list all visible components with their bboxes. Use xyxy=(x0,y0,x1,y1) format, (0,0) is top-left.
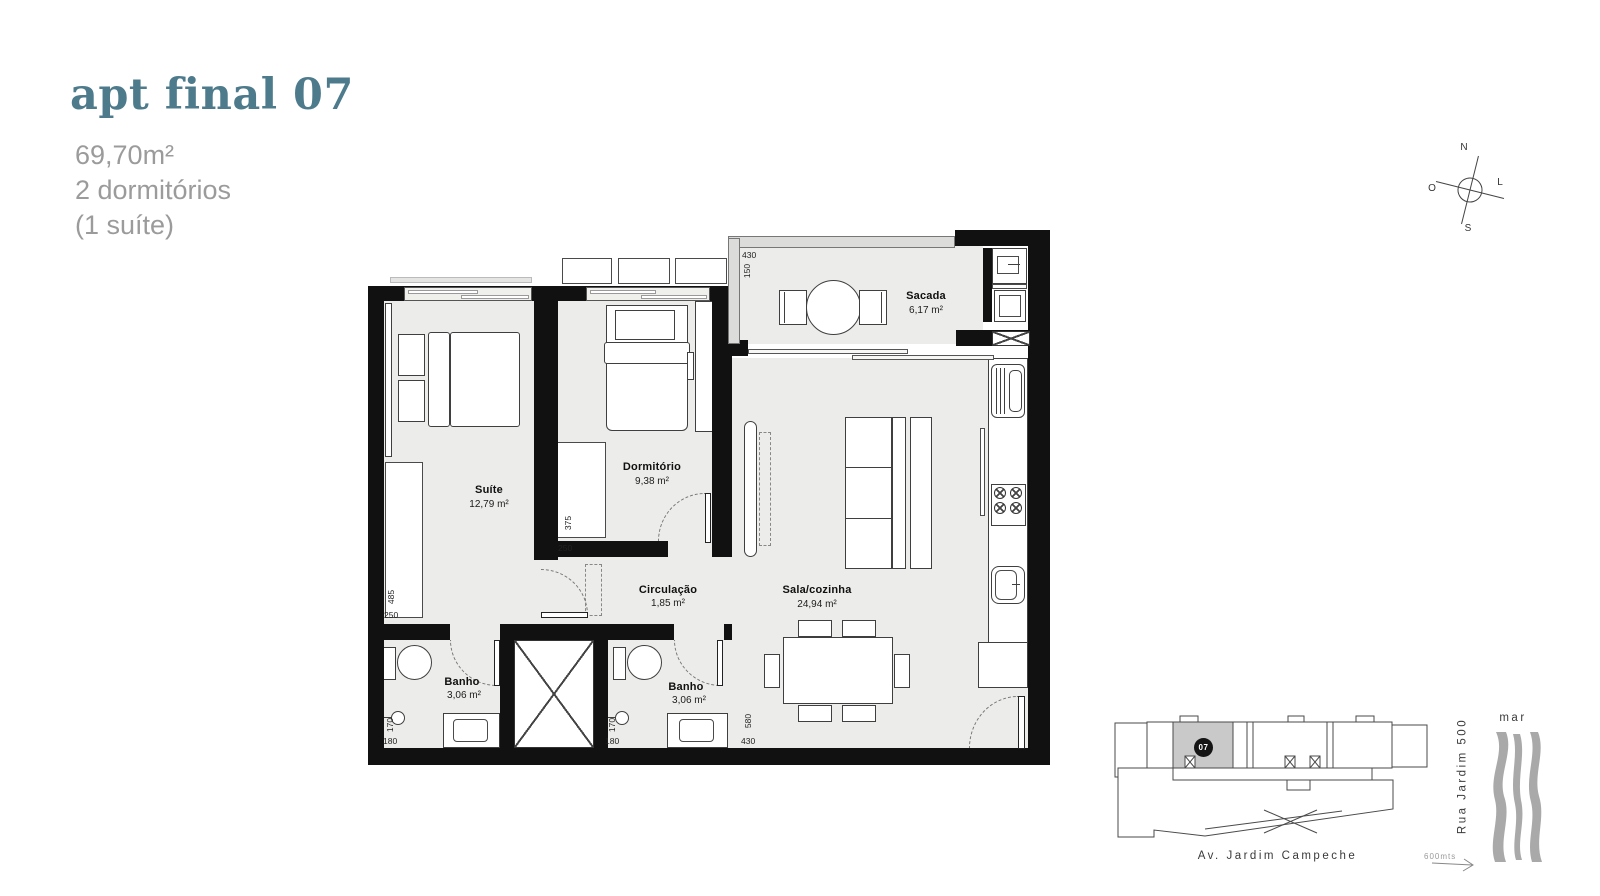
toilet-tank xyxy=(383,647,396,680)
floor-hall-opening xyxy=(712,557,732,624)
room-label-banho-left: Banho xyxy=(444,676,479,688)
room-label-dormitorio: Dormitório xyxy=(623,461,681,473)
dim-suite-height: 485 xyxy=(386,587,396,607)
ac-unit xyxy=(675,258,727,284)
window-sill xyxy=(390,277,532,283)
balcony-sliding-door xyxy=(748,349,908,354)
street-label: Rua Jardim 500 xyxy=(1457,714,1469,839)
dorm-bed-duvet xyxy=(604,342,690,364)
sea-waves-icon xyxy=(1486,726,1544,868)
dim-dorm-width: 250 xyxy=(558,543,572,553)
room-area-sacada: 6,17 m² xyxy=(909,305,943,316)
unit-07-badge: 07 xyxy=(1194,738,1213,757)
dim-sala-width: 430 xyxy=(741,736,755,746)
toilet-tank xyxy=(613,647,626,680)
burner-icon xyxy=(994,502,1006,514)
compass-south-label: S xyxy=(1460,223,1476,234)
dining-table xyxy=(783,637,893,704)
wall-segment xyxy=(368,286,384,765)
room-label-circulacao: Circulação xyxy=(639,584,697,596)
wall-segment xyxy=(1028,230,1050,765)
avenue-label: Av. Jardim Campeche xyxy=(1150,850,1405,862)
dim-sala-height: 580 xyxy=(743,711,753,731)
dim-banho-right-height: 170 xyxy=(607,715,617,735)
wall-segment xyxy=(983,248,992,322)
window-pane xyxy=(641,295,707,299)
dim-sacada-width: 430 xyxy=(742,250,756,260)
distance-arrow-icon xyxy=(1428,856,1483,874)
dim-dorm-height: 375 xyxy=(563,513,573,533)
drainboard-line xyxy=(1000,368,1001,414)
burner-icon xyxy=(1010,487,1022,499)
grill-box-inner xyxy=(999,295,1021,317)
room-area-dormitorio: 9,38 m² xyxy=(635,476,669,487)
wall-segment xyxy=(500,624,610,640)
dining-chair xyxy=(894,654,910,688)
toilet-bowl xyxy=(627,645,662,680)
suite-window xyxy=(404,287,532,301)
window-pane xyxy=(461,295,529,299)
dim-banho-right-width: 180 xyxy=(605,736,619,746)
suite-bed-duvet xyxy=(428,332,450,427)
room-area-circulacao: 1,85 m² xyxy=(651,598,685,609)
balcony-chair-arm xyxy=(784,292,785,323)
wall-segment xyxy=(610,624,674,640)
fridge xyxy=(978,642,1028,688)
dining-chair xyxy=(842,705,876,722)
entrance-door xyxy=(1018,696,1025,749)
balcony-sliding-door xyxy=(852,355,994,360)
dim-sacada-height: 150 xyxy=(742,261,752,281)
faucet-icon xyxy=(1008,264,1020,265)
window-pane xyxy=(590,290,656,294)
sofa-divider xyxy=(846,518,891,519)
room-area-banho-right: 3,06 m² xyxy=(672,695,706,706)
dorm-window xyxy=(586,287,710,301)
grill-shelf xyxy=(992,284,1027,289)
room-area-suite: 12,79 m² xyxy=(469,499,508,510)
balcony-chair xyxy=(859,290,887,325)
dim-banho-left-height: 170 xyxy=(385,715,395,735)
dorm-door xyxy=(705,493,711,543)
dining-chair xyxy=(798,705,832,722)
duct-shaft xyxy=(992,331,1030,346)
dining-chair xyxy=(764,654,780,688)
kitchen-sink-2-basin xyxy=(995,570,1017,600)
kitchen-sink-basin xyxy=(1009,370,1022,412)
suite-bed-pillow xyxy=(398,380,425,422)
console-table xyxy=(910,417,932,569)
wall-segment xyxy=(368,748,1018,765)
wall-segment xyxy=(534,301,558,560)
window-pane xyxy=(408,290,478,294)
suite-door xyxy=(541,612,588,618)
compass-west-label: O xyxy=(1424,183,1440,194)
suite-bed-mattress xyxy=(450,332,520,427)
drainboard-line xyxy=(1004,368,1005,414)
bath-sink-basin xyxy=(679,719,714,742)
sofa-back xyxy=(892,417,906,569)
wall-segment xyxy=(368,624,450,640)
apartment-specs: 69,70m² 2 dormitórios (1 suíte) xyxy=(75,138,231,243)
sofa-cushions xyxy=(845,417,892,569)
dorm-bed-pillow xyxy=(615,310,675,340)
compass-east-label: L xyxy=(1492,177,1508,188)
wall-segment xyxy=(724,624,732,640)
room-label-banho-right: Banho xyxy=(668,681,703,693)
room-label-sala: Sala/cozinha xyxy=(782,584,851,596)
ac-unit xyxy=(562,258,612,284)
spec-bedrooms: 2 dormitórios xyxy=(75,173,231,208)
balcony-chair-arm xyxy=(881,292,882,323)
wall-segment xyxy=(594,640,608,748)
balcony-parapet-top xyxy=(728,236,955,248)
page-title: apt final 07 xyxy=(70,70,354,120)
sofa-divider xyxy=(846,467,891,468)
elevator-shaft xyxy=(514,640,594,748)
room-area-sala: 24,94 m² xyxy=(797,599,836,610)
shower-head-icon xyxy=(615,711,629,725)
dorm-closet xyxy=(552,442,606,538)
wall-segment xyxy=(955,230,1050,246)
burner-icon xyxy=(994,487,1006,499)
wall-segment xyxy=(500,640,514,748)
dining-chair xyxy=(842,620,876,637)
spec-suite: (1 suíte) xyxy=(75,208,231,243)
compass-rose-icon xyxy=(1430,150,1510,230)
balcony-parapet-left xyxy=(728,238,740,344)
dining-chair xyxy=(798,620,832,637)
tv-bracket xyxy=(759,432,771,546)
room-area-banho-left: 3,06 m² xyxy=(447,690,481,701)
kitchen-shelf xyxy=(980,428,985,516)
bath-sink-basin xyxy=(453,719,488,742)
building-footprint-map xyxy=(1092,698,1437,848)
faucet-icon xyxy=(1012,584,1020,585)
balcony-table xyxy=(806,280,861,335)
spec-area: 69,70m² xyxy=(75,138,231,173)
dim-suite-width: 250 xyxy=(384,610,398,620)
suite-bed-pillow xyxy=(398,334,425,376)
tv-panel xyxy=(744,421,757,557)
dorm-wardrobe-handle xyxy=(687,352,694,380)
drainboard-line xyxy=(996,368,997,414)
suite-headboard-panel xyxy=(385,303,392,457)
compass-north-label: N xyxy=(1456,142,1472,153)
sea-label: mar xyxy=(1490,712,1536,724)
dim-banho-left-width: 180 xyxy=(383,736,397,746)
room-label-sacada: Sacada xyxy=(906,290,946,302)
room-label-suite: Suíte xyxy=(475,484,503,496)
bath-door xyxy=(717,640,723,686)
bath-door xyxy=(494,640,500,686)
ac-unit xyxy=(618,258,670,284)
burner-icon xyxy=(1010,502,1022,514)
toilet-bowl xyxy=(397,645,432,680)
grill-counter-sink xyxy=(997,256,1019,274)
